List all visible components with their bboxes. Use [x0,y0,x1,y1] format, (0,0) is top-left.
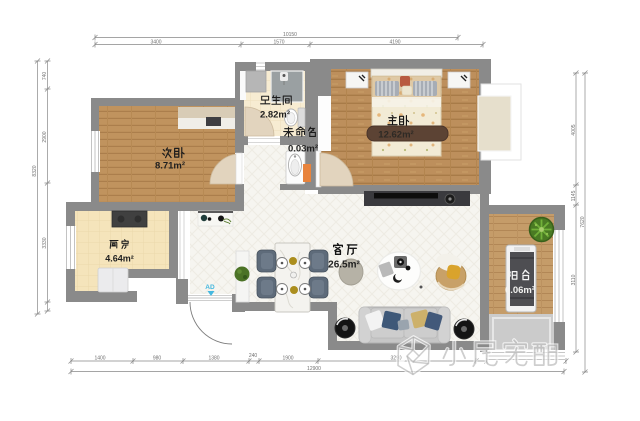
svg-text:3110: 3110 [571,274,577,285]
svg-text:0.03m²: 0.03m² [288,144,318,155]
svg-text:240: 240 [249,353,258,359]
svg-text:1900: 1900 [282,356,293,362]
svg-text:3400: 3400 [150,39,161,45]
svg-text:7620: 7620 [580,216,586,227]
svg-text:1400: 1400 [94,356,105,362]
svg-text:8320: 8320 [32,165,38,176]
svg-text:6.06m²: 6.06m² [505,285,535,296]
svg-text:980: 980 [153,356,162,362]
svg-text:12.62m²: 12.62m² [378,130,413,141]
svg-text:2.82m²: 2.82m² [260,110,290,121]
svg-text:10150: 10150 [283,32,297,38]
svg-text:3330: 3330 [42,237,48,248]
svg-text:2900: 2900 [42,131,48,142]
svg-text:740: 740 [42,72,48,81]
svg-text:4005: 4005 [571,124,577,135]
svg-text:4.64m²: 4.64m² [105,254,134,264]
svg-text:12900: 12900 [307,366,321,372]
svg-text:4190: 4190 [389,39,400,45]
svg-text:1145: 1145 [571,190,577,201]
svg-text:AD: AD [205,284,215,291]
svg-text:1380: 1380 [208,356,219,362]
svg-text:26.5m²: 26.5m² [328,260,360,271]
svg-text:1570: 1570 [273,39,284,45]
svg-text:8.71m²: 8.71m² [155,161,185,172]
